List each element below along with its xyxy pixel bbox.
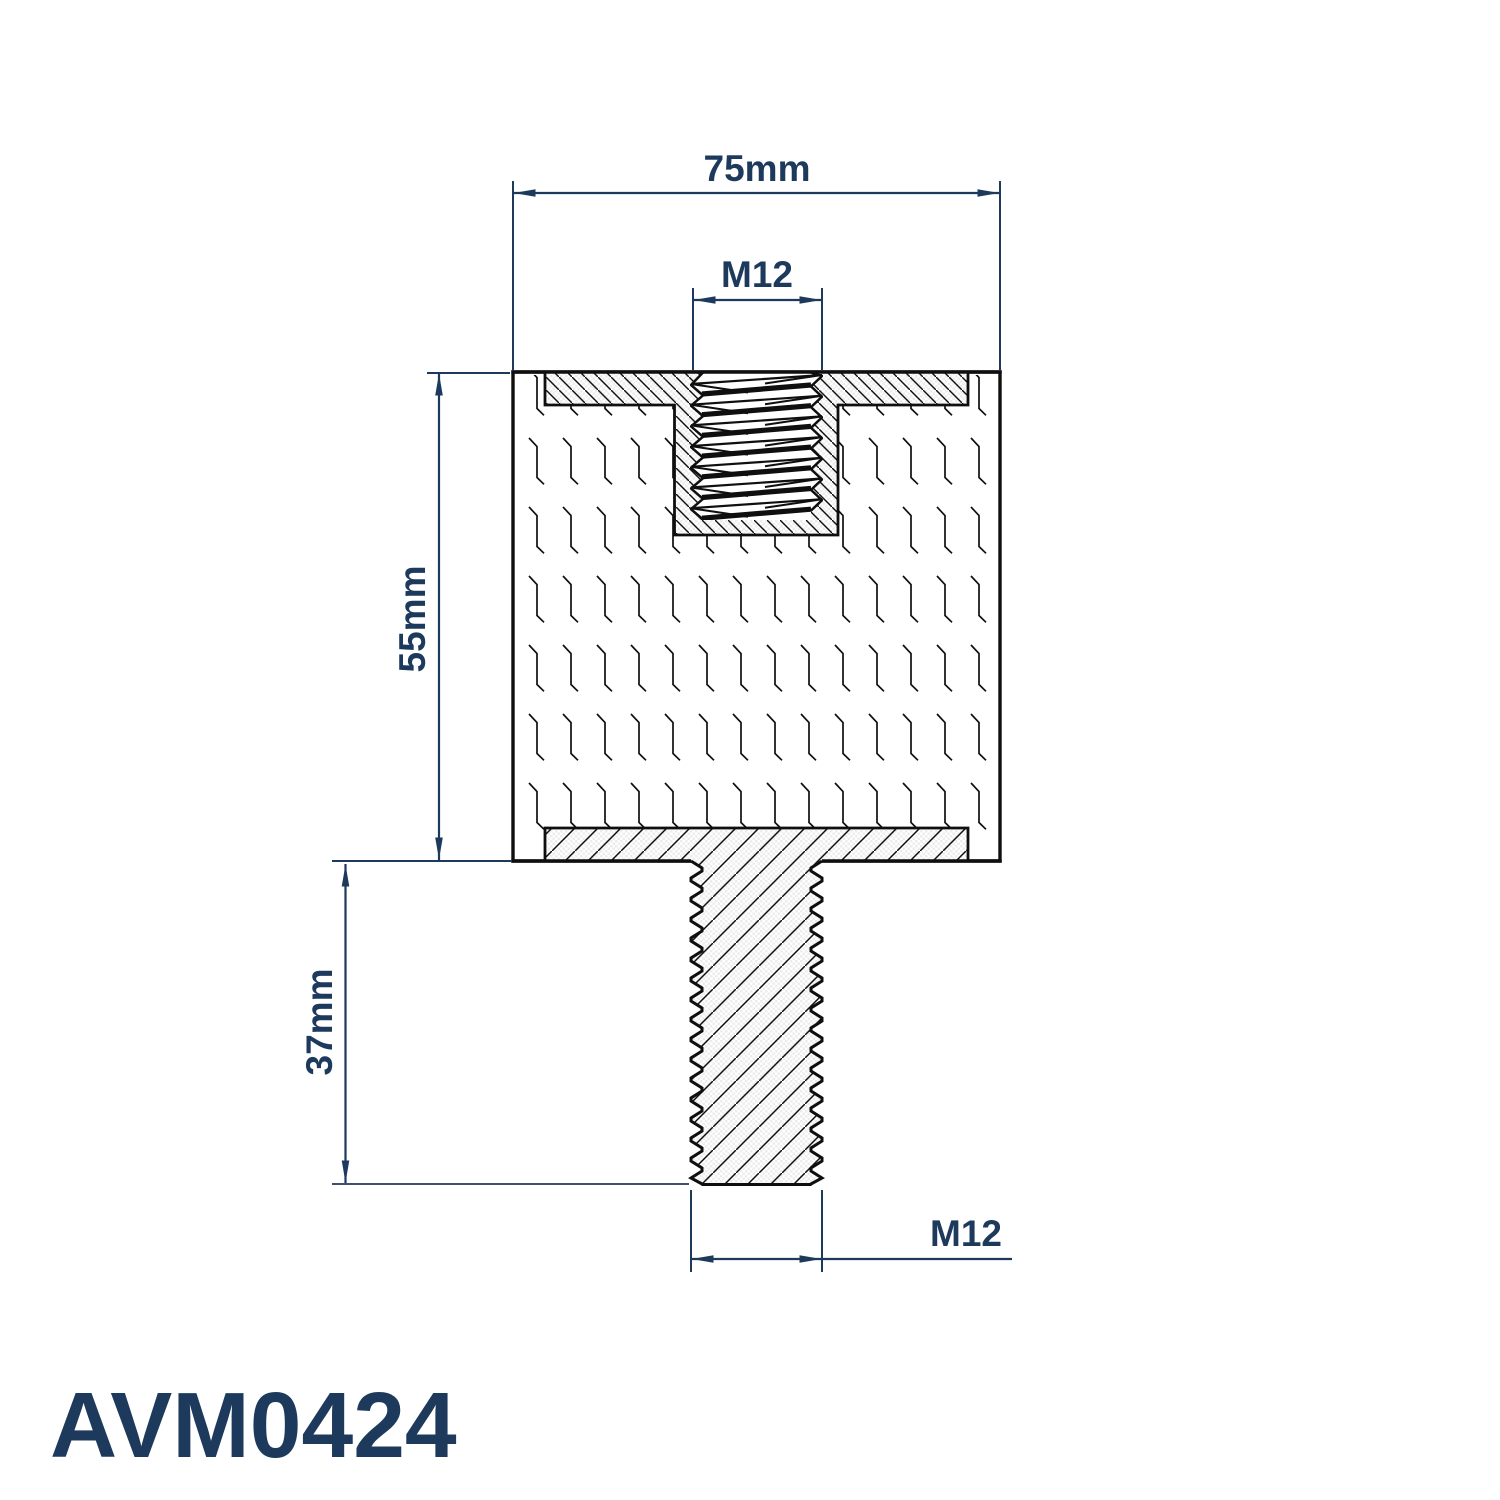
svg-text:AVM0424: AVM0424 [50,1373,457,1477]
svg-text:75mm: 75mm [704,148,811,189]
svg-text:55mm: 55mm [392,566,433,673]
svg-text:37mm: 37mm [299,969,340,1076]
svg-text:M12: M12 [930,1213,1002,1254]
svg-text:M12: M12 [721,254,793,295]
